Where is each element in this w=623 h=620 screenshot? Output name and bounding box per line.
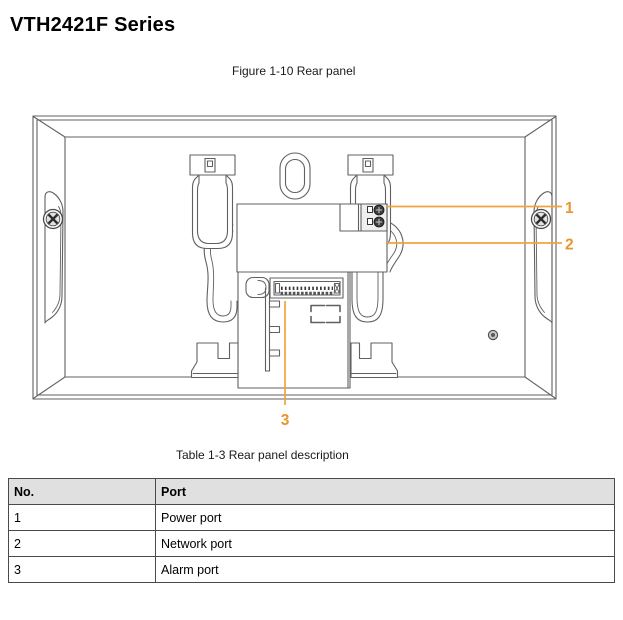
table-row: 2 Network port [9, 531, 615, 557]
cell-no: 3 [9, 557, 156, 583]
small-screw-icon [488, 330, 497, 339]
top-left-hook [190, 155, 235, 249]
callout-label-3: 3 [281, 412, 290, 429]
rear-panel-description-table: No. Port 1 Power port 2 Network port 3 A… [8, 478, 615, 583]
column-header-port: Port [156, 479, 615, 505]
table-row: 3 Alarm port [9, 557, 615, 583]
table-row: 1 Power port [9, 505, 615, 531]
cell-no: 2 [9, 531, 156, 557]
cell-port: Power port [156, 505, 615, 531]
table-header-row: No. Port [9, 479, 615, 505]
cell-no: 1 [9, 505, 156, 531]
bottom-right-hook [351, 343, 398, 378]
callout-label-2: 2 [565, 237, 574, 254]
right-screw-icon [532, 210, 551, 229]
table-caption: Table 1-3 Rear panel description [176, 448, 349, 462]
left-screw-icon [44, 210, 63, 229]
bottom-left-hook [192, 343, 239, 378]
hanging-slot [280, 153, 310, 199]
cell-port: Alarm port [156, 557, 615, 583]
callout-label-1: 1 [565, 200, 574, 217]
u-cable-channel [352, 272, 383, 322]
cell-port: Network port [156, 531, 615, 557]
column-header-no: No. [9, 479, 156, 505]
